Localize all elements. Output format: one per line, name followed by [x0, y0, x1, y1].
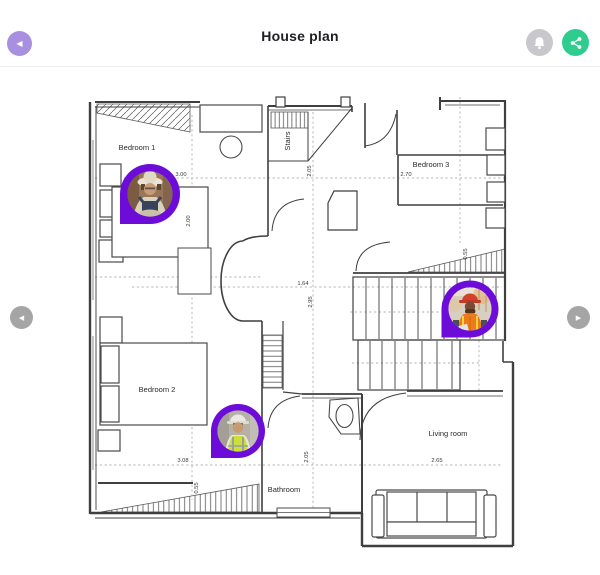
- bedroom2-furniture: [98, 317, 207, 451]
- room-label-bedroom3: Bedroom 3: [413, 160, 450, 169]
- prev-plan-button[interactable]: ◀: [10, 306, 33, 329]
- dimension-label: 0.55: [194, 482, 200, 493]
- worker-pin-bedroom1[interactable]: [120, 164, 180, 224]
- share-button[interactable]: [562, 29, 589, 56]
- room-label-stairs: Stairs: [283, 131, 292, 150]
- page-title: House plan: [261, 28, 338, 44]
- worker-pin-bathroom[interactable]: [211, 404, 265, 458]
- chevron-right-icon: ▶: [576, 314, 581, 322]
- worker-pin-staircase[interactable]: [442, 281, 499, 338]
- room-label-bedroom1: Bedroom 1: [119, 143, 156, 152]
- dimension-label: 2.65: [431, 458, 442, 464]
- dimension-label: 2.95: [308, 296, 314, 307]
- next-plan-button[interactable]: ▶: [567, 306, 590, 329]
- room-label-bedroom2: Bedroom 2: [139, 385, 176, 394]
- dimension-label: 2.70: [400, 172, 411, 178]
- room-label-livingroom: Living room: [429, 429, 468, 438]
- chevron-left-icon: ◀: [19, 314, 24, 322]
- header: ◀ House plan: [0, 0, 600, 67]
- bell-icon: [533, 36, 546, 50]
- share-icon: [569, 36, 583, 50]
- dimension-label: 3.08: [177, 458, 188, 464]
- dimension-label: 2.00: [186, 215, 192, 226]
- bathroom-fixtures: [277, 398, 360, 517]
- sofa: [372, 490, 496, 538]
- dimension-label: 0.55: [463, 248, 469, 259]
- notifications-button[interactable]: [526, 29, 553, 56]
- dimension-label: 3.00: [175, 172, 186, 178]
- ladder-strip: [263, 335, 282, 388]
- house-plan-screen: ◀ House plan: [0, 0, 600, 575]
- dimension-label: 1.64: [297, 281, 309, 287]
- room-label-bathroom: Bathroom: [268, 485, 301, 494]
- back-button[interactable]: ◀: [7, 31, 32, 56]
- floor-plan-canvas: Bedroom 1 Stairs Bedroom 3 Bedroom 2 Bat…: [0, 0, 600, 575]
- stairs-treads-top: [271, 112, 308, 128]
- dimension-label: 2.05: [307, 165, 313, 176]
- chevron-left-icon: ◀: [16, 39, 22, 48]
- dimension-label: 2.05: [304, 451, 310, 462]
